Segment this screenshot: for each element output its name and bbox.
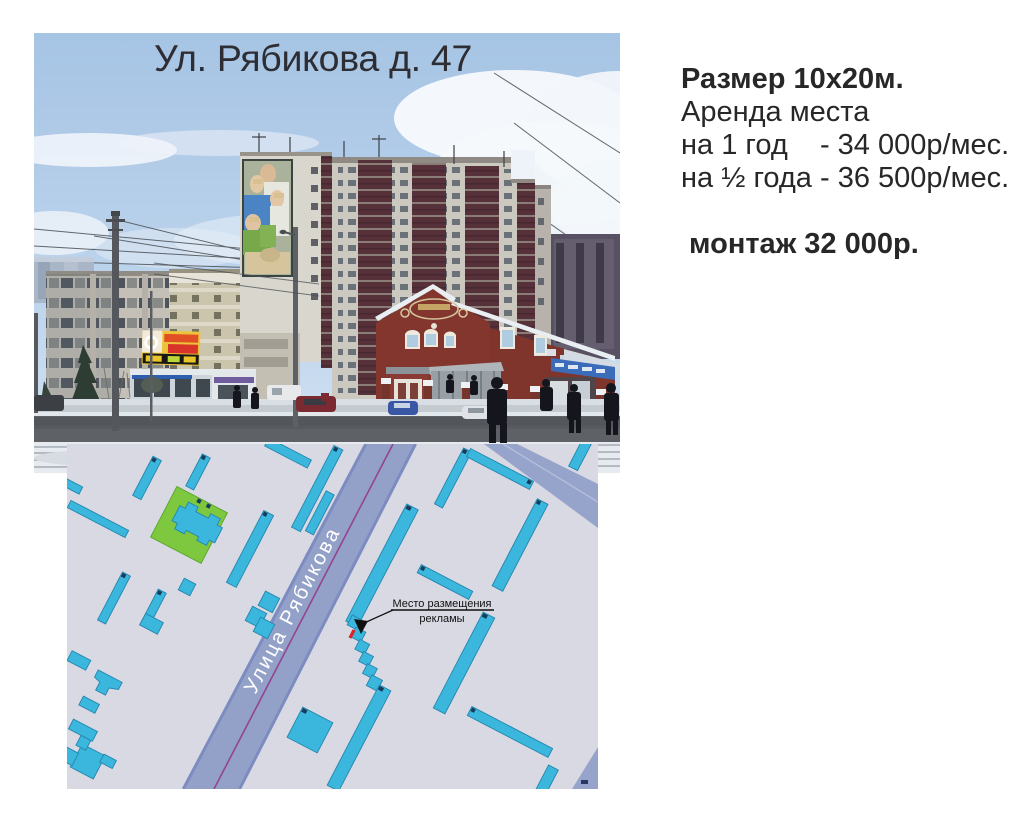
svg-text:Место размещения: Место размещения — [392, 598, 491, 610]
svg-text:рекламы: рекламы — [419, 613, 464, 625]
